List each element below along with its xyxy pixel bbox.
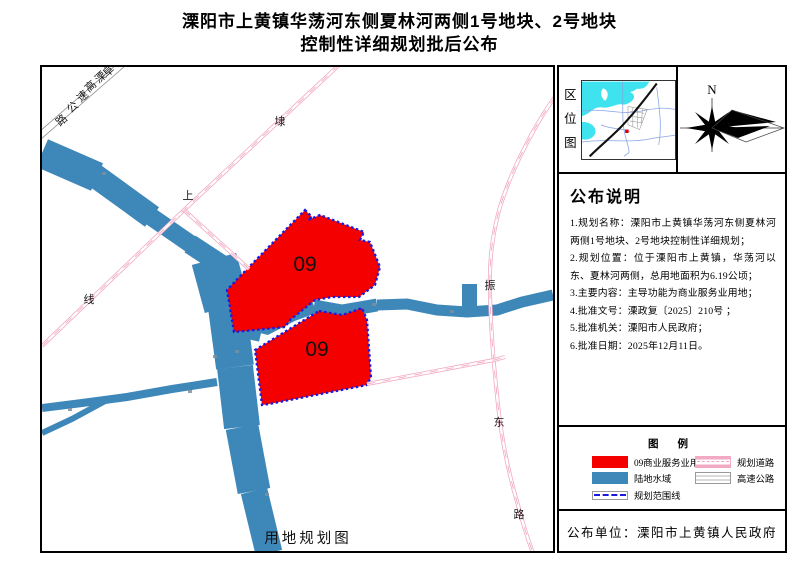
river-stub — [462, 284, 477, 314]
zhendong-char: 东 — [494, 416, 505, 429]
location-map-title: 区 位 图 — [562, 89, 579, 150]
river-east — [314, 305, 377, 311]
announcement-page: 溧阳市上黄镇华荡河东侧夏林河两侧1号地块、2号地块 控制性详细规划批后公布 — [0, 0, 799, 570]
land-use-map: 09 09 — [40, 65, 555, 553]
compass-star — [686, 106, 776, 150]
panel-top-row: 区 位 图 — [559, 67, 785, 174]
zhendong-char: 路 — [514, 508, 525, 521]
compass-cell: N — [678, 67, 786, 172]
zhendong-char: 振 — [485, 278, 496, 292]
inset-town-grid — [628, 106, 647, 129]
note-item: 3.主要内容：主导功能为商业服务业用地； — [570, 285, 776, 303]
legend-swatch-water — [592, 472, 628, 484]
page-title: 溧阳市上黄镇华荡河东侧夏林河两侧1号地块、2号地块 控制性详细规划批后公布 — [0, 10, 799, 56]
announcement-notes: 公布说明 1.规划名称：溧阳市上黄镇华荡河东侧夏林河两侧1号地块、2号地块控制性… — [559, 174, 785, 427]
daishang-char: 埭 — [275, 115, 286, 128]
note-item: 2.规划位置：位于溧阳市上黄镇，华荡河以东、夏林河两侧，总用地面积为6.19公顷… — [570, 250, 776, 285]
river-main — [242, 427, 254, 491]
compass-rose: N — [678, 70, 786, 170]
daishang-char: 上 — [183, 189, 194, 202]
legend-label: 规划道路 — [737, 455, 774, 469]
legend-label: 规划范围线 — [634, 488, 681, 502]
legend-swatch-commercial — [592, 456, 628, 468]
river-northwest — [94, 175, 152, 217]
map-caption: 用地规划图 — [264, 530, 352, 547]
info-panel: 区 位 图 — [557, 65, 787, 553]
legend-swatch-boundary — [592, 491, 628, 500]
publisher-text: 公布单位：溧阳市上黄镇人民政府 — [567, 522, 777, 541]
river-main-upper — [214, 259, 227, 307]
note-item: 4.批准文号：溧政复〔2025〕210号 ； — [570, 303, 776, 321]
title-line-1: 溧阳市上黄镇华荡河东侧夏林河两侧1号地块、2号地块 — [0, 10, 799, 33]
publisher-bar: 公布单位：溧阳市上黄镇人民政府 — [559, 511, 785, 551]
legend-item: 规划道路 — [695, 455, 774, 469]
note-item: 5.批准机关：溧阳市人民政府； — [570, 320, 776, 338]
notes-title: 公布说明 — [570, 183, 776, 207]
location-map-cell: 区 位 图 — [559, 67, 678, 172]
land-use-map-canvas: 09 09 — [42, 67, 553, 551]
title-line-2: 控制性详细规划批后公布 — [0, 33, 799, 56]
legend-label: 高速公路 — [737, 471, 774, 485]
daishang-char: 线 — [84, 292, 95, 306]
legend-item: 09商业服务业用地 — [592, 455, 708, 469]
note-item: 6.批准日期：2025年12月11日。 — [570, 338, 776, 356]
legend-swatch-highway — [695, 472, 731, 484]
north-label: N — [707, 82, 717, 97]
location-title-char: 图 — [562, 137, 579, 150]
location-title-char: 区 — [562, 89, 579, 102]
legend-item: 陆地水域 — [592, 471, 671, 485]
legend-title: 图 例 — [559, 436, 785, 451]
location-title-char: 位 — [562, 113, 579, 126]
river-west-branch — [42, 382, 217, 408]
note-item: 1.规划名称：溧阳市上黄镇华荡河东侧夏林河两侧1号地块、2号地块控制性详细规划； — [570, 215, 776, 250]
legend: 图 例 09商业服务业用地 陆地水域 规划范围线 规划道路 高速公路 — [559, 427, 785, 511]
parcel-label-north: 09 — [293, 253, 316, 276]
legend-item: 规划范围线 — [592, 488, 681, 502]
legend-swatch-planned-road — [695, 456, 731, 468]
legend-item: 高速公路 — [695, 471, 774, 485]
legend-label: 陆地水域 — [634, 471, 671, 485]
river-northwest — [42, 153, 97, 177]
road-zhendong — [367, 97, 553, 551]
site-location-dot — [625, 129, 628, 132]
location-inset-map — [581, 80, 676, 160]
location-inset-canvas — [582, 81, 675, 157]
parcel-label-south: 09 — [305, 338, 328, 361]
river-main — [235, 367, 242, 427]
